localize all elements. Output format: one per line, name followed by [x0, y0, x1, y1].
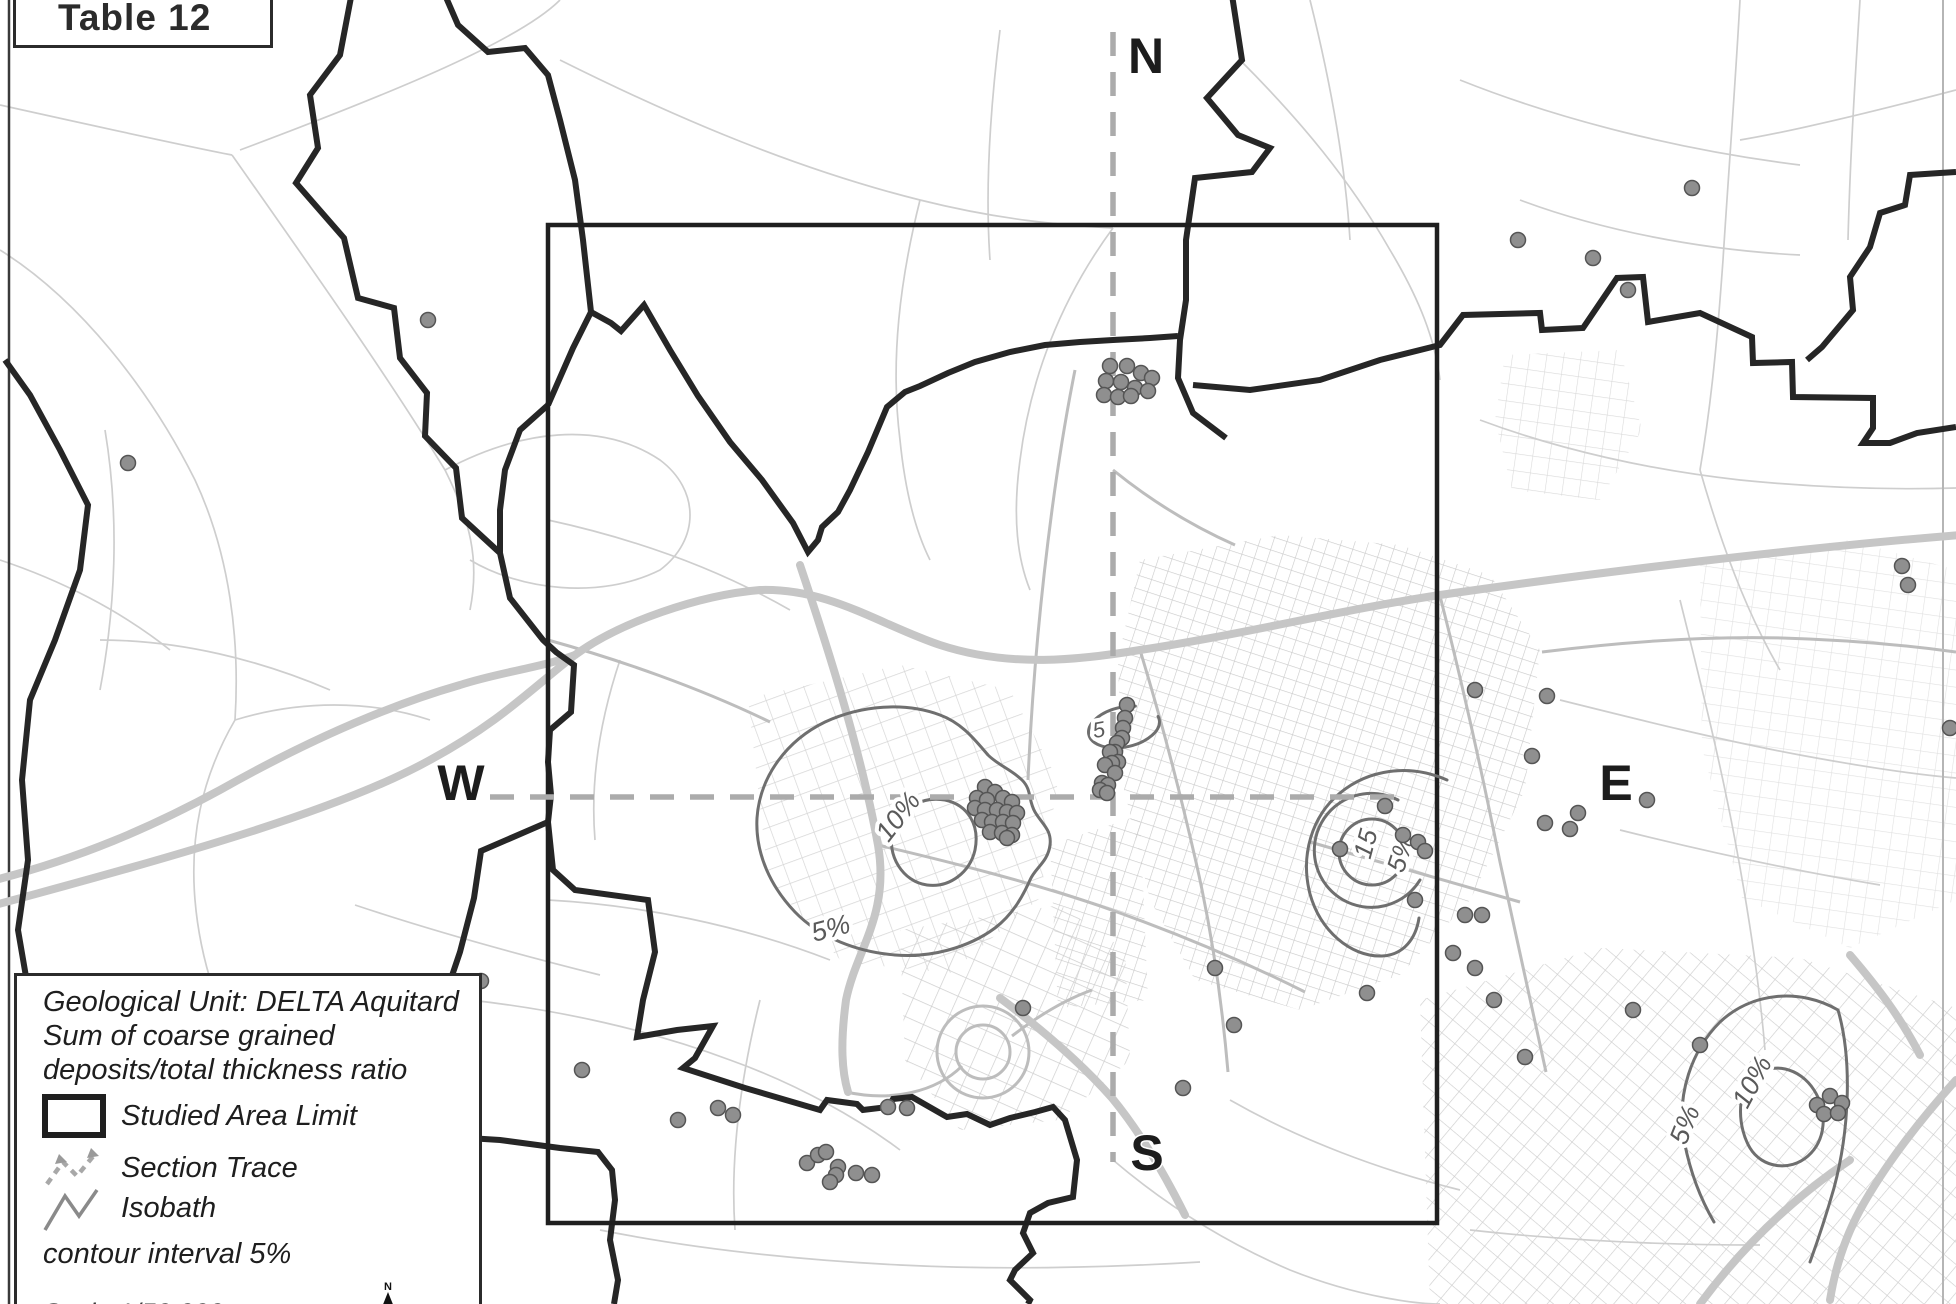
- data-point-dot: [1831, 1106, 1846, 1121]
- legend-item-isobath: Isobath: [17, 1184, 479, 1232]
- data-point-dot: [1468, 683, 1483, 698]
- legend-item-label: Studied Area Limit: [121, 1100, 357, 1133]
- isobath-icon: [39, 1184, 129, 1236]
- data-point-dot: [1458, 908, 1473, 923]
- legend-scale-text: Scale 1/50 000: [43, 1298, 223, 1304]
- data-point-dot: [1396, 828, 1411, 843]
- data-point-dot: [1693, 1038, 1708, 1053]
- data-point-dot: [1016, 1001, 1031, 1016]
- data-point-dot: [1817, 1107, 1832, 1122]
- data-point-dot: [1120, 359, 1135, 374]
- data-point-dot: [1124, 389, 1139, 404]
- data-point-dot: [865, 1168, 880, 1183]
- data-point-dot: [1418, 844, 1433, 859]
- data-point-dot: [1943, 721, 1956, 736]
- north-arrow-triangle: [380, 1292, 396, 1304]
- legend-contour-interval-note: contour interval 5%: [43, 1238, 291, 1271]
- data-point-dot: [1571, 806, 1586, 821]
- data-point-dot: [1333, 842, 1348, 857]
- data-point-dot: [671, 1113, 686, 1128]
- legend-item-studied-area-limit: Studied Area Limit: [17, 1092, 479, 1140]
- legend-item-label: Isobath: [121, 1192, 216, 1225]
- data-point-dot: [1378, 799, 1393, 814]
- north-arrow-icon: N: [373, 1282, 403, 1304]
- data-point-dot: [1475, 908, 1490, 923]
- data-point-dot: [1208, 961, 1223, 976]
- data-point-dot: [1000, 831, 1015, 846]
- data-point-dot: [1100, 786, 1115, 801]
- data-point-dot: [575, 1063, 590, 1078]
- title-box: Table 12: [13, 0, 273, 48]
- data-point-dot: [1360, 986, 1375, 1001]
- compass-label-west: W: [437, 755, 485, 811]
- data-point-dot: [849, 1166, 864, 1181]
- data-point-dot: [1525, 749, 1540, 764]
- data-point-dot: [1099, 374, 1114, 389]
- data-point-dot: [1586, 251, 1601, 266]
- data-point-dot: [900, 1101, 915, 1116]
- data-point-dot: [881, 1100, 896, 1115]
- data-point-dot: [1563, 822, 1578, 837]
- data-point-dot: [1141, 384, 1156, 399]
- legend-item-label: Section Trace: [121, 1152, 298, 1185]
- data-point-dot: [1468, 961, 1483, 976]
- data-point-dot: [1097, 388, 1112, 403]
- data-point-dot: [421, 313, 436, 328]
- data-point-dot: [1895, 559, 1910, 574]
- data-point-dot: [1511, 233, 1526, 248]
- map-figure: 10%5%5155%10%5% N S W E Table 12 Geologi…: [0, 0, 1956, 1304]
- data-point-dot: [1446, 946, 1461, 961]
- data-point-dot: [1408, 893, 1423, 908]
- compass-label-east: E: [1599, 755, 1632, 811]
- data-point-dot: [1621, 283, 1636, 298]
- north-arrow-label: N: [373, 1282, 403, 1292]
- data-point-dot: [1540, 689, 1555, 704]
- legend-box: Geological Unit: DELTA Aquitard Sum of c…: [14, 973, 482, 1304]
- compass-label-north: N: [1128, 28, 1164, 84]
- data-point-dot: [1626, 1003, 1641, 1018]
- data-point-dot: [1538, 816, 1553, 831]
- data-point-dot: [823, 1175, 838, 1190]
- data-point-dot: [711, 1101, 726, 1116]
- data-point-dot: [819, 1145, 834, 1160]
- data-point-dot: [1176, 1081, 1191, 1096]
- data-point-dot: [1640, 793, 1655, 808]
- legend-title-line-3: deposits/total thickness ratio: [43, 1054, 407, 1087]
- data-point-dot: [1227, 1018, 1242, 1033]
- data-point-dot: [1685, 181, 1700, 196]
- legend-title-line-2: Sum of coarse grained: [43, 1020, 335, 1053]
- data-point-dot: [121, 456, 136, 471]
- legend-title-line-1: Geological Unit: DELTA Aquitard: [43, 986, 459, 1019]
- data-point-dot: [726, 1108, 741, 1123]
- figure-title: Table 12: [58, 0, 211, 39]
- data-point-dot: [1114, 375, 1129, 390]
- data-point-dot: [1901, 578, 1916, 593]
- data-point-dot: [1518, 1050, 1533, 1065]
- studied-area-limit-icon: [39, 1092, 129, 1140]
- data-point-dot: [1103, 359, 1118, 374]
- compass-label-south: S: [1130, 1125, 1163, 1181]
- data-point-dot: [1487, 993, 1502, 1008]
